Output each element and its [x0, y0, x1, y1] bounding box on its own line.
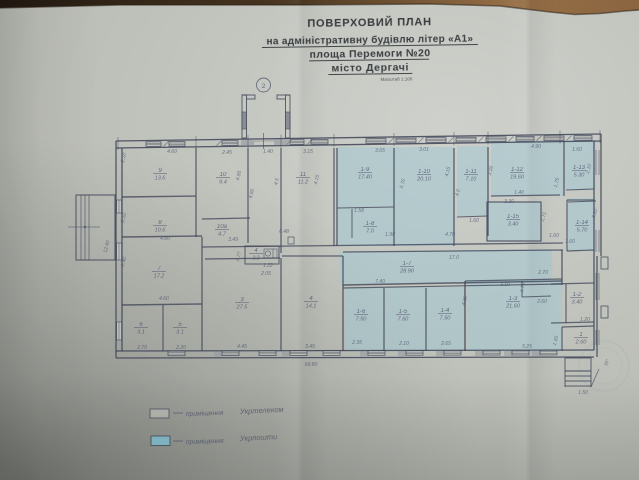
- svg-text:2.60: 2.60: [575, 340, 588, 346]
- svg-text:1-10: 1-10: [418, 169, 431, 175]
- svg-text:4: 4: [254, 248, 257, 254]
- svg-text:3.65: 3.65: [375, 148, 385, 154]
- svg-text:1.20: 1.20: [580, 317, 590, 323]
- svg-text:1.60: 1.60: [549, 233, 559, 239]
- svg-text:2.35: 2.35: [351, 340, 362, 346]
- svg-text:1.60: 1.60: [565, 239, 575, 245]
- svg-text:7.50: 7.50: [440, 316, 452, 322]
- svg-text:3.01: 3.01: [419, 147, 429, 153]
- svg-text:1.40: 1.40: [514, 190, 524, 196]
- svg-text:20.10: 20.10: [416, 177, 432, 183]
- svg-text:приміщення: приміщення: [186, 409, 224, 418]
- svg-text:3.1: 3.1: [137, 330, 145, 336]
- svg-text:1-5: 1-5: [399, 309, 408, 315]
- svg-text:19.60: 19.60: [510, 175, 525, 181]
- svg-text:3.45: 3.45: [305, 344, 315, 350]
- svg-text:4.60: 4.60: [159, 296, 169, 302]
- svg-text:5.30: 5.30: [574, 173, 586, 179]
- svg-text:2: 2: [262, 83, 266, 90]
- svg-text:приміщення: приміщення: [186, 437, 224, 446]
- svg-text:7.10: 7.10: [466, 177, 478, 183]
- svg-text:1-11: 1-11: [465, 169, 477, 175]
- svg-text:1-8: 1-8: [366, 221, 375, 227]
- svg-text:9.4: 9.4: [219, 180, 227, 186]
- svg-text:10а: 10а: [217, 224, 228, 230]
- svg-text:1-14: 1-14: [576, 220, 589, 226]
- svg-text:10.6: 10.6: [155, 228, 167, 234]
- svg-text:28.90: 28.90: [399, 269, 415, 275]
- svg-text:6.48: 6.48: [279, 229, 289, 235]
- svg-text:4.7: 4.7: [218, 232, 227, 238]
- svg-text:4.90: 4.90: [531, 144, 541, 150]
- svg-text:5.25: 5.25: [522, 344, 532, 350]
- svg-text:1-2: 1-2: [573, 292, 582, 298]
- svg-text:7.60: 7.60: [398, 317, 410, 323]
- svg-text:1-6: 1-6: [357, 309, 366, 315]
- svg-text:11.2: 11.2: [298, 180, 308, 186]
- svg-text:2.10: 2.10: [499, 282, 510, 288]
- svg-text:1.90: 1.90: [385, 232, 395, 238]
- svg-text:10: 10: [220, 172, 227, 178]
- svg-text:27.5: 27.5: [236, 305, 249, 311]
- svg-text:3.40: 3.40: [572, 300, 584, 306]
- svg-text:2.10: 2.10: [398, 341, 409, 347]
- svg-text:3.1: 3.1: [176, 330, 184, 336]
- svg-text:1.60: 1.60: [469, 218, 479, 224]
- svg-text:3.30: 3.30: [504, 199, 514, 205]
- svg-text:1-13: 1-13: [573, 165, 586, 171]
- svg-text:2.70: 2.70: [537, 270, 548, 276]
- svg-text:7.40: 7.40: [375, 279, 385, 285]
- svg-text:1-3: 1-3: [509, 296, 518, 302]
- svg-text:2.20: 2.20: [175, 345, 186, 351]
- svg-text:1.60: 1.60: [572, 147, 582, 153]
- svg-text:1-4: 1-4: [441, 308, 450, 314]
- svg-text:Масштаб 1:100: Масштаб 1:100: [380, 76, 412, 81]
- svg-text:4.45: 4.45: [237, 344, 247, 350]
- svg-text:1-7: 1-7: [403, 261, 412, 267]
- svg-text:3.15: 3.15: [303, 149, 313, 155]
- svg-text:17.2: 17.2: [154, 274, 165, 280]
- svg-text:4.60: 4.60: [167, 149, 177, 155]
- svg-text:69.80: 69.80: [305, 362, 318, 368]
- svg-text:місто Дергачі: місто Дергачі: [331, 61, 409, 74]
- svg-text:17.40: 17.40: [358, 175, 373, 181]
- svg-text:3.40: 3.40: [508, 222, 520, 228]
- svg-text:7.0: 7.0: [366, 229, 375, 235]
- svg-text:5.70: 5.70: [577, 228, 589, 234]
- svg-text:1-12: 1-12: [511, 167, 524, 173]
- svg-text:17.0: 17.0: [449, 255, 459, 261]
- svg-text:4.70: 4.70: [445, 232, 455, 238]
- svg-text:11: 11: [300, 172, 306, 178]
- svg-text:1-15: 1-15: [507, 214, 520, 220]
- svg-text:1: 1: [579, 332, 582, 338]
- svg-text:2.2: 2.2: [252, 256, 260, 262]
- svg-text:14.1: 14.1: [306, 304, 317, 310]
- svg-text:3.49: 3.49: [228, 237, 238, 243]
- svg-text:2.65: 2.65: [440, 341, 451, 347]
- svg-text:2.45: 2.45: [221, 150, 232, 156]
- svg-text:4.60: 4.60: [160, 236, 170, 242]
- svg-text:1.40: 1.40: [263, 149, 273, 155]
- svg-text:2.05: 2.05: [260, 271, 271, 277]
- svg-text:1.22: 1.22: [263, 263, 273, 269]
- svg-text:1.58: 1.58: [354, 208, 364, 214]
- svg-text:площа Перемоги №20: площа Перемоги №20: [310, 47, 431, 61]
- svg-text:2.70: 2.70: [136, 345, 147, 351]
- svg-text:21.60: 21.60: [505, 304, 521, 310]
- svg-text:ПОВЕРХОВИЙ ПЛАН: ПОВЕРХОВИЙ ПЛАН: [307, 15, 432, 30]
- svg-text:2.60: 2.60: [536, 299, 547, 305]
- svg-text:1-9: 1-9: [361, 167, 370, 173]
- svg-text:7.50: 7.50: [356, 317, 368, 323]
- svg-text:13.6: 13.6: [155, 176, 167, 182]
- svg-text:1.50: 1.50: [578, 390, 588, 396]
